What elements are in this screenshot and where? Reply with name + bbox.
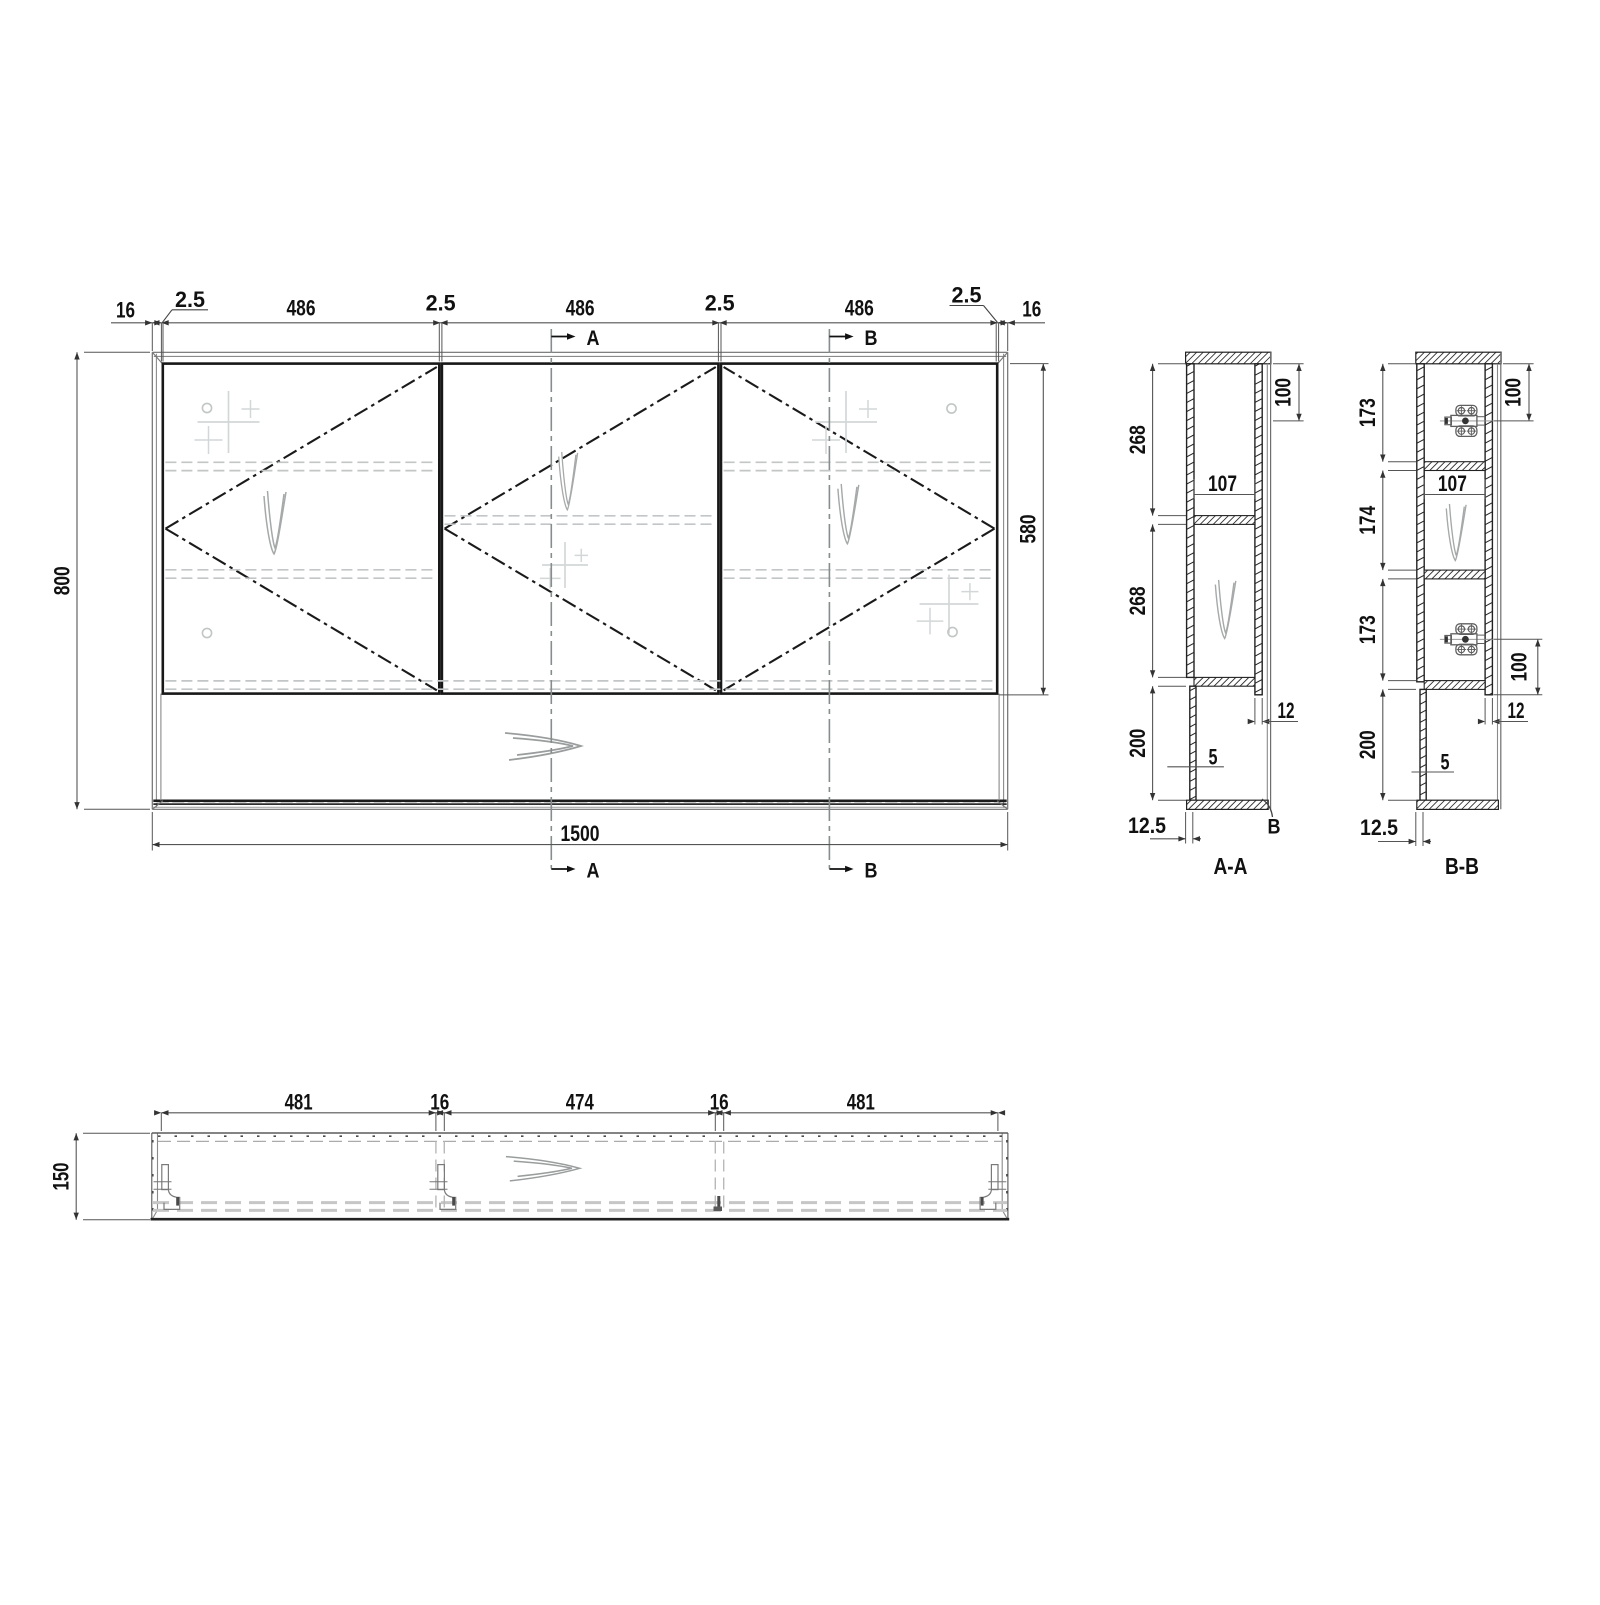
- svg-text:16: 16: [116, 298, 135, 323]
- svg-text:474: 474: [566, 1090, 595, 1115]
- svg-text:100: 100: [1507, 653, 1532, 682]
- svg-text:12.5: 12.5: [1360, 815, 1398, 840]
- svg-text:B: B: [1268, 816, 1281, 839]
- svg-text:12.5: 12.5: [1128, 813, 1166, 838]
- svg-text:16: 16: [710, 1090, 729, 1115]
- svg-text:A-A: A-A: [1214, 853, 1248, 879]
- svg-text:481: 481: [847, 1090, 875, 1115]
- svg-text:173: 173: [1355, 615, 1380, 644]
- svg-text:5: 5: [1209, 745, 1218, 770]
- svg-text:2.5: 2.5: [426, 291, 456, 316]
- svg-text:A: A: [587, 327, 600, 350]
- svg-text:12: 12: [1278, 698, 1295, 723]
- svg-text:150: 150: [49, 1163, 74, 1191]
- svg-text:173: 173: [1355, 398, 1380, 427]
- svg-text:16: 16: [1022, 297, 1041, 322]
- svg-text:100: 100: [1271, 378, 1296, 407]
- svg-text:B: B: [865, 327, 878, 350]
- svg-text:200: 200: [1125, 729, 1150, 758]
- svg-text:580: 580: [1015, 515, 1040, 544]
- svg-text:200: 200: [1355, 730, 1380, 759]
- svg-text:107: 107: [1208, 471, 1237, 496]
- svg-text:5: 5: [1441, 750, 1450, 775]
- svg-text:486: 486: [566, 296, 595, 321]
- svg-text:800: 800: [50, 566, 75, 595]
- svg-text:174: 174: [1355, 505, 1380, 535]
- svg-text:268: 268: [1125, 586, 1150, 615]
- svg-text:A: A: [587, 860, 600, 883]
- svg-text:2.5: 2.5: [952, 283, 982, 308]
- svg-text:12: 12: [1508, 698, 1525, 723]
- svg-text:486: 486: [845, 296, 874, 321]
- svg-text:1500: 1500: [561, 821, 600, 846]
- svg-text:100: 100: [1501, 378, 1526, 407]
- svg-text:B-B: B-B: [1445, 853, 1479, 879]
- svg-text:107: 107: [1438, 471, 1467, 496]
- svg-text:486: 486: [287, 296, 316, 321]
- svg-text:2.5: 2.5: [175, 287, 205, 312]
- svg-text:268: 268: [1125, 425, 1150, 454]
- svg-text:481: 481: [285, 1090, 313, 1115]
- svg-text:B: B: [865, 860, 878, 883]
- svg-text:16: 16: [430, 1090, 449, 1115]
- svg-text:2.5: 2.5: [705, 291, 735, 316]
